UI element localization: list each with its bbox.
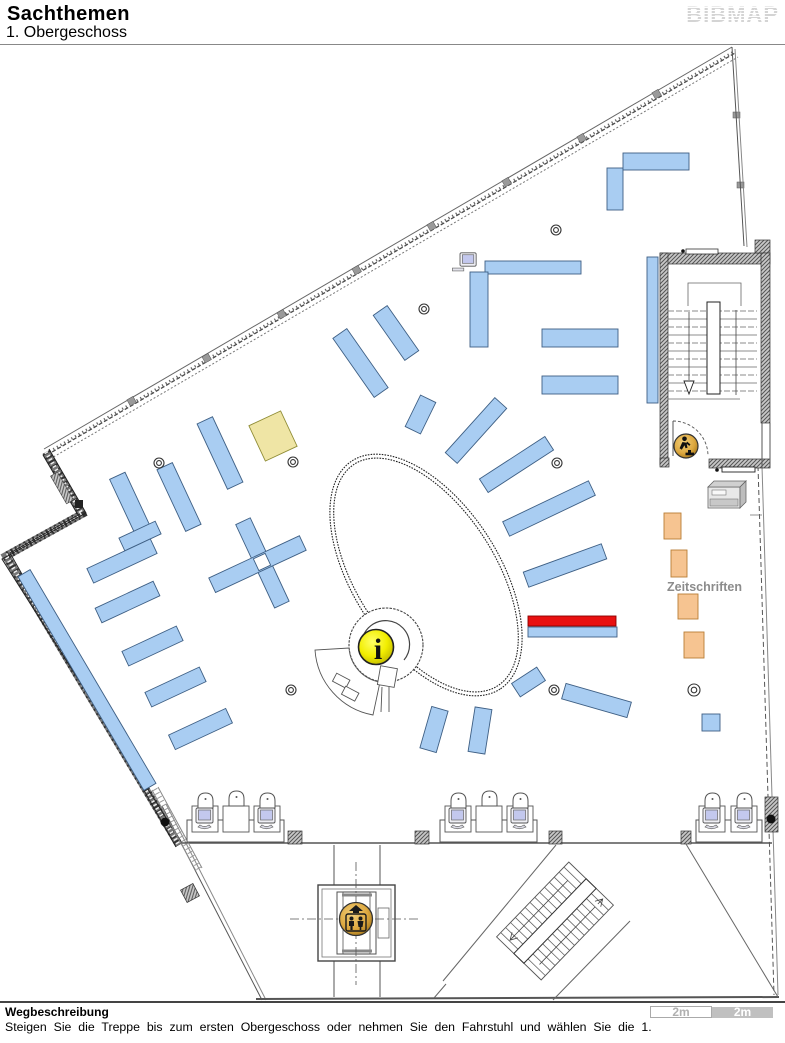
svg-text:i: i: [374, 633, 382, 666]
